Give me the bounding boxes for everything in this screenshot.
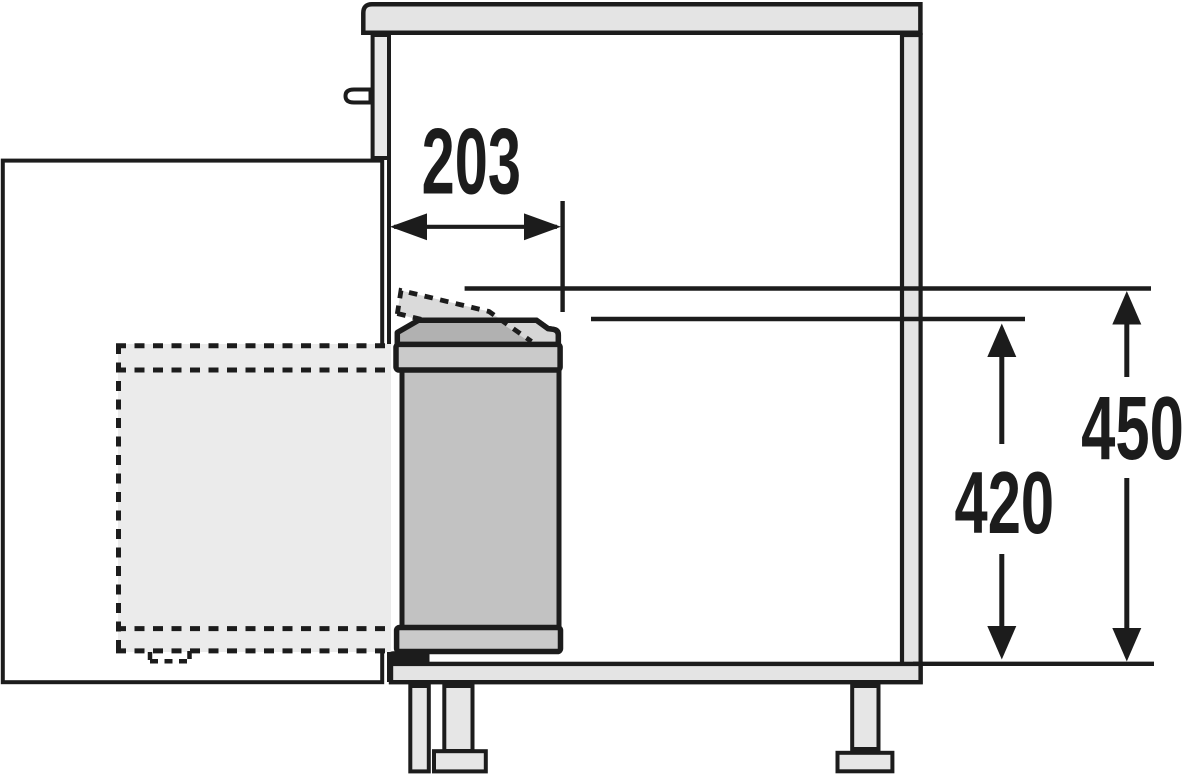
- svg-text:420: 420: [955, 453, 1055, 552]
- svg-text:450: 450: [1081, 378, 1184, 478]
- svg-text:203: 203: [422, 109, 521, 214]
